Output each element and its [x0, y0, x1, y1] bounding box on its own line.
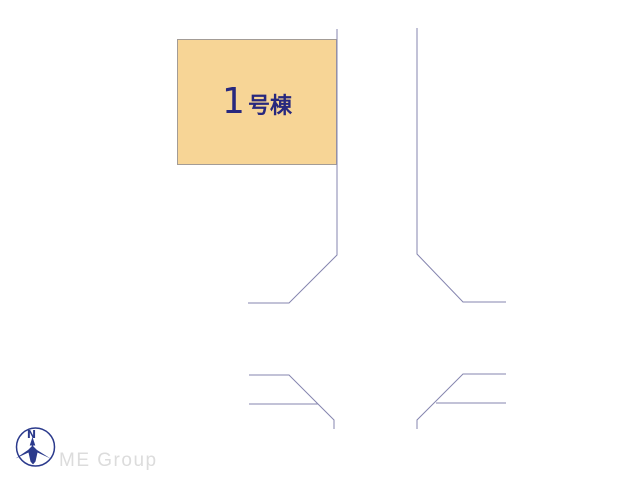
building-number: 1: [222, 84, 245, 120]
road-edge-right-lower: [417, 374, 506, 429]
building-lot-1: 1 号棟: [177, 39, 337, 165]
building-label: 1 号棟: [222, 84, 292, 120]
compass-bird-icon: [16, 446, 51, 465]
north-compass: N: [16, 428, 55, 466]
building-suffix: 号棟: [248, 96, 292, 118]
brand-watermark: ME Group: [59, 450, 158, 472]
compass-north-label: N: [27, 428, 36, 441]
road-edge-right-upper: [417, 28, 506, 302]
site-plan-canvas: 1 号棟 N ME Group: [0, 0, 640, 480]
road-edge-left-lower: [249, 375, 334, 429]
compass-circle-icon: [17, 428, 55, 466]
compass-arrowhead-icon: [30, 437, 36, 446]
